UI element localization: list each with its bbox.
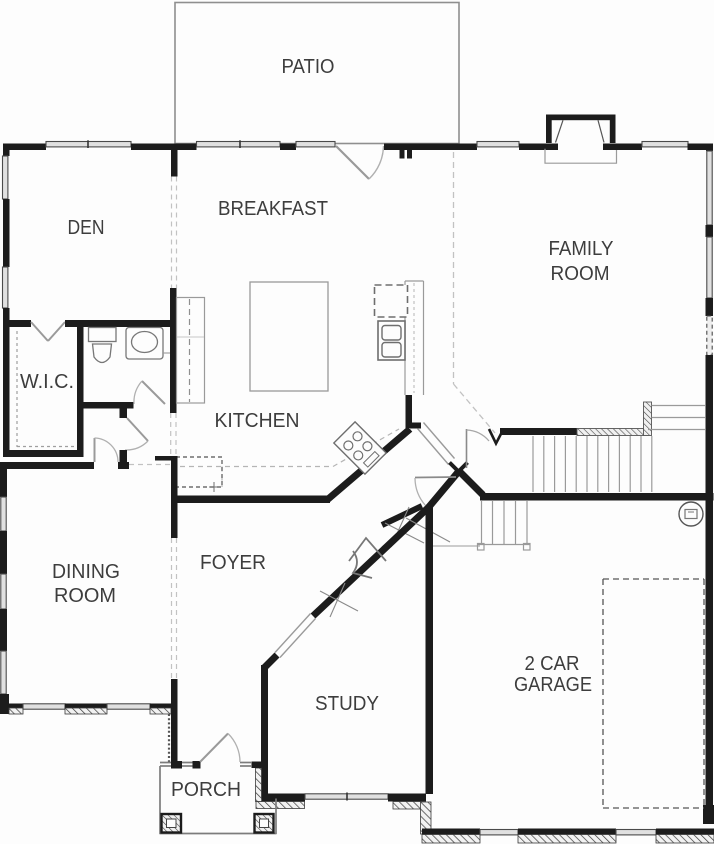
svg-text:FAMILY: FAMILY [549, 238, 614, 260]
svg-text:KITCHEN: KITCHEN [215, 410, 300, 432]
svg-text:ROOM: ROOM [551, 263, 610, 285]
svg-text:PORCH: PORCH [171, 779, 241, 801]
svg-text:ROOM: ROOM [54, 585, 116, 607]
svg-text:DEN: DEN [68, 217, 105, 239]
svg-text:STUDY: STUDY [315, 693, 379, 715]
svg-text:PATIO: PATIO [282, 56, 335, 78]
svg-text:BREAKFAST: BREAKFAST [218, 198, 328, 220]
svg-text:W.I.C.: W.I.C. [20, 371, 74, 393]
svg-text:2 CAR: 2 CAR [525, 653, 580, 675]
svg-text:FOYER: FOYER [200, 552, 266, 574]
svg-text:GARAGE: GARAGE [514, 674, 592, 696]
svg-text:DINING: DINING [52, 561, 120, 583]
